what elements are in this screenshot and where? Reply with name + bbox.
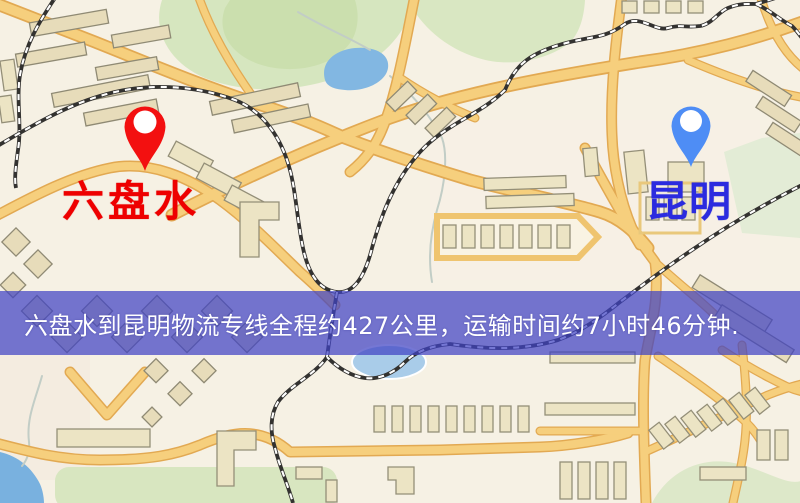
- map-canvas[interactable]: [0, 0, 800, 503]
- map-view: 六盘水 昆明 六盘水到昆明物流专线全程约427公里，运输时间约7小时46分钟.: [0, 0, 800, 503]
- destination-city-label: 昆明: [646, 181, 732, 223]
- route-info-banner: 六盘水到昆明物流专线全程约427公里，运输时间约7小时46分钟.: [0, 291, 800, 355]
- route-info-text: 六盘水到昆明物流专线全程约427公里，运输时间约7小时46分钟.: [24, 306, 739, 341]
- origin-city-label: 六盘水: [62, 181, 200, 223]
